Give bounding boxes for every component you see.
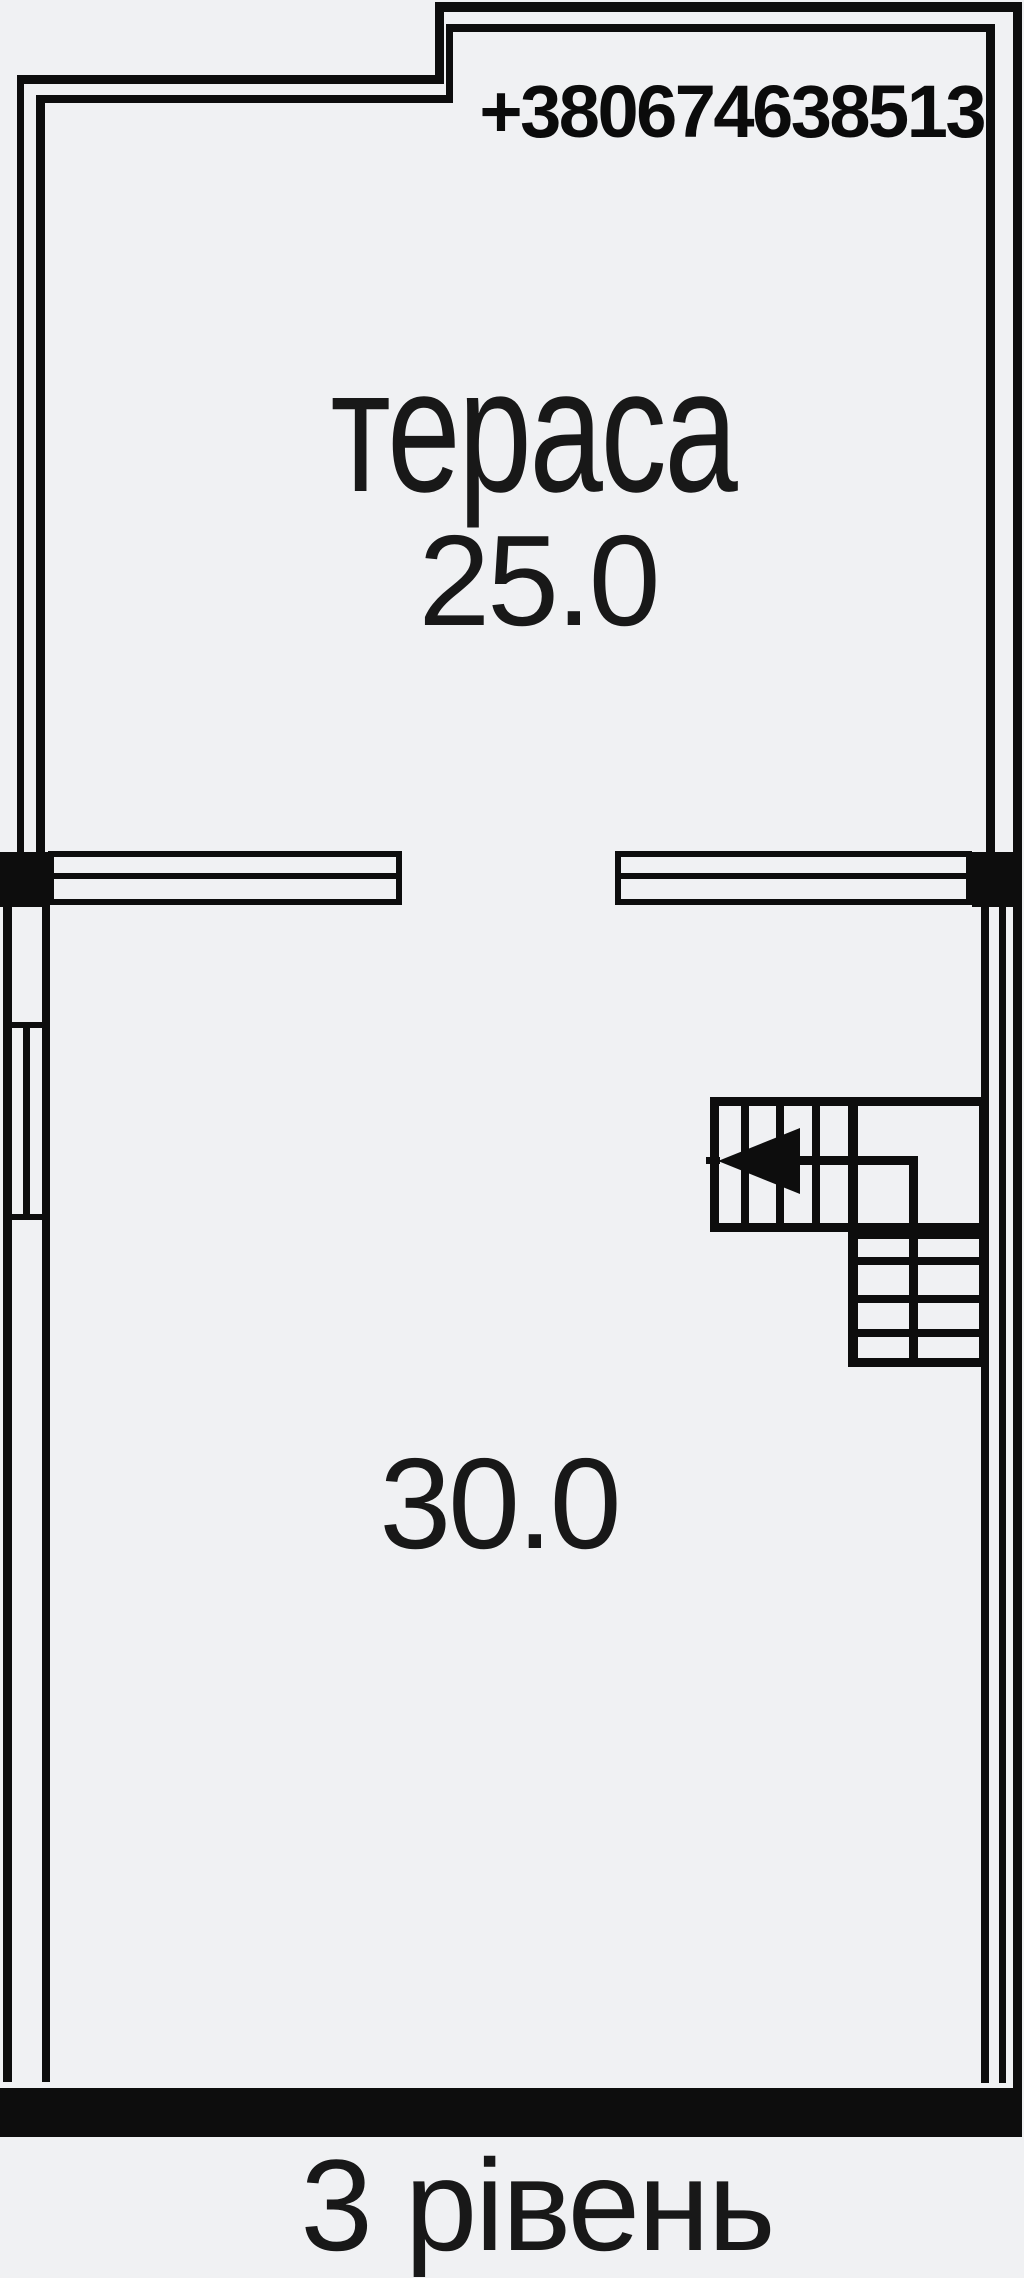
wall-right-mid-lower [999, 905, 1006, 2083]
middle-wall-left-pier [0, 852, 48, 907]
stairs-lower-tread-3 [848, 1329, 988, 1337]
wall-left-outer-lower [3, 905, 12, 2082]
wall-right-inner-lower [981, 905, 989, 2083]
wall-top-right-outer [435, 2, 1022, 12]
floor-plan: +380674638513 тераса 25.0 30.0 3 рівень [0, 0, 1024, 2266]
wall-terrace-top-left-inner [36, 95, 448, 103]
window-symbol-left [48, 851, 402, 905]
window-pane-line [54, 873, 396, 879]
wall-right-inner-upper [986, 24, 995, 854]
window-symbol-right [615, 851, 972, 905]
stairs-lower-tread-2 [848, 1295, 988, 1303]
phone-number: +380674638513 [479, 75, 984, 149]
wall-top-right-inner [448, 24, 990, 32]
room-area-main: 30.0 [249, 1440, 749, 1569]
stairs-arrow-tail [706, 1157, 720, 1164]
left-window-middle-line [23, 1022, 30, 1220]
room-label-terrace: тераса [308, 343, 758, 519]
stairs-direction-arrow-icon [718, 1128, 800, 1194]
stairs-lower-tread-1 [848, 1257, 988, 1265]
wall-right-outer [1013, 2, 1022, 2088]
level-caption: 3 рівень [287, 2140, 787, 2270]
stairs-corner-line-horizontal [800, 1156, 918, 1165]
middle-wall-right-pier [972, 852, 1021, 907]
left-window-cap-bottom [3, 1214, 50, 1220]
wall-bottom-bar [0, 2088, 1022, 2137]
wall-terrace-left-inner [36, 95, 45, 854]
room-area-terrace: 25.0 [288, 517, 788, 646]
wall-left-inner-lower [42, 905, 50, 2082]
wall-top-step-inner [446, 24, 453, 103]
wall-top-step-outer [435, 4, 444, 84]
stairs-corner-line-vertical [909, 1156, 918, 1236]
wall-terrace-top-left-outer [17, 75, 443, 84]
left-window-cap-top [3, 1022, 50, 1028]
wall-terrace-left-outer [17, 75, 24, 854]
window-pane-line [621, 873, 966, 879]
